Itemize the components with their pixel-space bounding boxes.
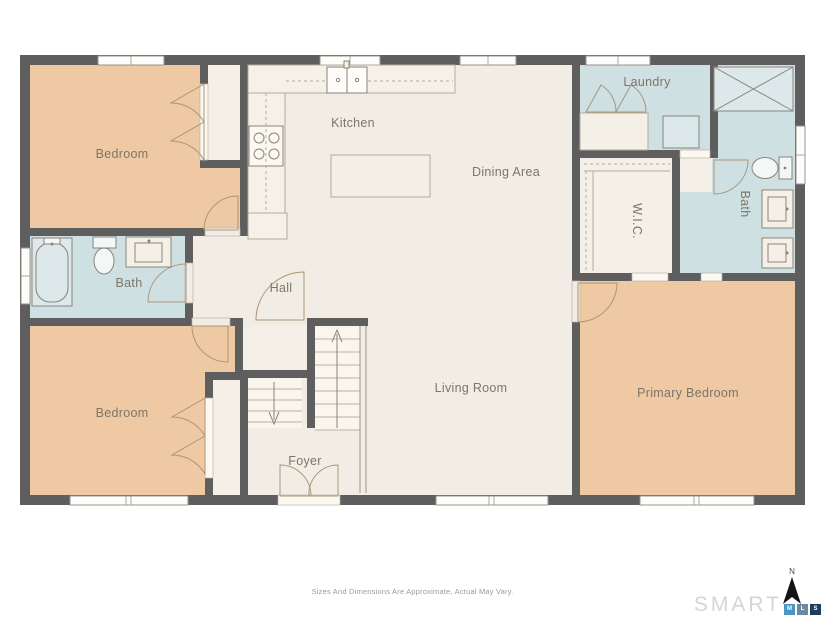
washer-dryer-closet: [580, 113, 648, 150]
kitchen-counter-end: [248, 213, 287, 239]
vanity-sink: [126, 237, 171, 267]
room-closet-topleft: [208, 65, 240, 160]
shower: [714, 67, 793, 111]
floor-plan-drawing: [0, 0, 825, 619]
bathtub: [32, 238, 72, 306]
logo-text: SMART: [694, 594, 782, 615]
smart-mls-logo: SMART M L S: [694, 594, 821, 615]
kitchen-island: [331, 155, 430, 197]
toilet: [93, 237, 116, 274]
toilet: [752, 157, 792, 179]
room-wic: [580, 158, 672, 273]
window: [436, 496, 548, 505]
vanity-sink: [762, 190, 793, 228]
compass-north-label: N: [780, 568, 804, 576]
logo-badge-s: S: [810, 604, 821, 615]
logo-badge-l: L: [797, 604, 808, 615]
utility-fixture: [663, 116, 699, 148]
room-primary-bedroom: [580, 281, 795, 495]
room-hall-closet: [243, 326, 307, 370]
floor-plan-canvas: Bedroom Kitchen Dining Area Laundry Bath…: [0, 0, 825, 619]
room-closet-bottomleft: [213, 380, 240, 495]
logo-badge-m: M: [784, 604, 795, 615]
vanity-sink: [762, 238, 793, 268]
laundry-fixtures: [580, 113, 699, 150]
disclaimer-text: Sizes And Dimensions Are Approximate, Ac…: [312, 587, 514, 596]
window: [640, 496, 754, 505]
window: [70, 496, 188, 505]
room-vestibule: [680, 158, 712, 192]
